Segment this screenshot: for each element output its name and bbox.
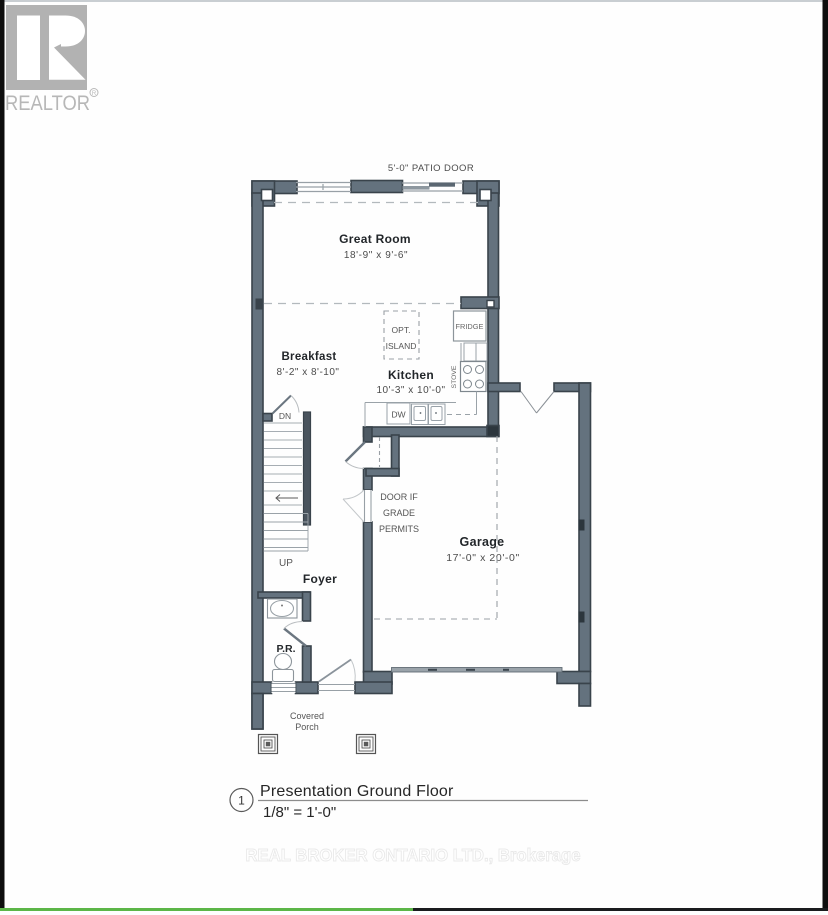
svg-text:1: 1	[238, 794, 245, 808]
svg-text:5'-0" PATIO DOOR: 5'-0" PATIO DOOR	[388, 163, 474, 174]
svg-text:17'-0" x 20'-0": 17'-0" x 20'-0"	[446, 552, 520, 564]
svg-text:Garage: Garage	[460, 535, 505, 549]
svg-text:Kitchen: Kitchen	[388, 368, 434, 382]
svg-text:Great Room: Great Room	[339, 232, 411, 246]
svg-text:Breakfast: Breakfast	[281, 351, 336, 363]
svg-text:DN: DN	[279, 411, 291, 421]
svg-text:FRIDGE: FRIDGE	[456, 322, 484, 331]
svg-text:UP: UP	[279, 558, 293, 569]
svg-text:REALTOR: REALTOR	[5, 92, 90, 115]
svg-text:P.R.: P.R.	[276, 643, 295, 655]
svg-text:DW: DW	[391, 410, 406, 420]
svg-text:R: R	[92, 91, 97, 97]
svg-text:PERMITS: PERMITS	[379, 524, 419, 534]
svg-text:8'-2" x 8'-10": 8'-2" x 8'-10"	[277, 367, 340, 378]
svg-text:OPT.: OPT.	[392, 325, 411, 335]
svg-text:Porch: Porch	[295, 722, 319, 732]
svg-text:Foyer: Foyer	[303, 572, 337, 586]
svg-text:18'-9" x 9'-6": 18'-9" x 9'-6"	[344, 250, 408, 261]
svg-text:Covered: Covered	[290, 711, 324, 721]
svg-text:GRADE: GRADE	[383, 508, 415, 518]
svg-text:REAL BROKER ONTARIO LTD., Brok: REAL BROKER ONTARIO LTD., Brokerage	[246, 845, 581, 865]
svg-text:10'-3" x 10'-0": 10'-3" x 10'-0"	[376, 385, 445, 396]
svg-text:1/8" = 1'-0": 1/8" = 1'-0"	[263, 804, 336, 821]
svg-text:DOOR IF: DOOR IF	[380, 492, 418, 502]
svg-text:Presentation Ground Floor: Presentation Ground Floor	[260, 783, 454, 800]
svg-text:STOVE: STOVE	[451, 365, 458, 388]
svg-text:ISLAND: ISLAND	[386, 341, 417, 351]
